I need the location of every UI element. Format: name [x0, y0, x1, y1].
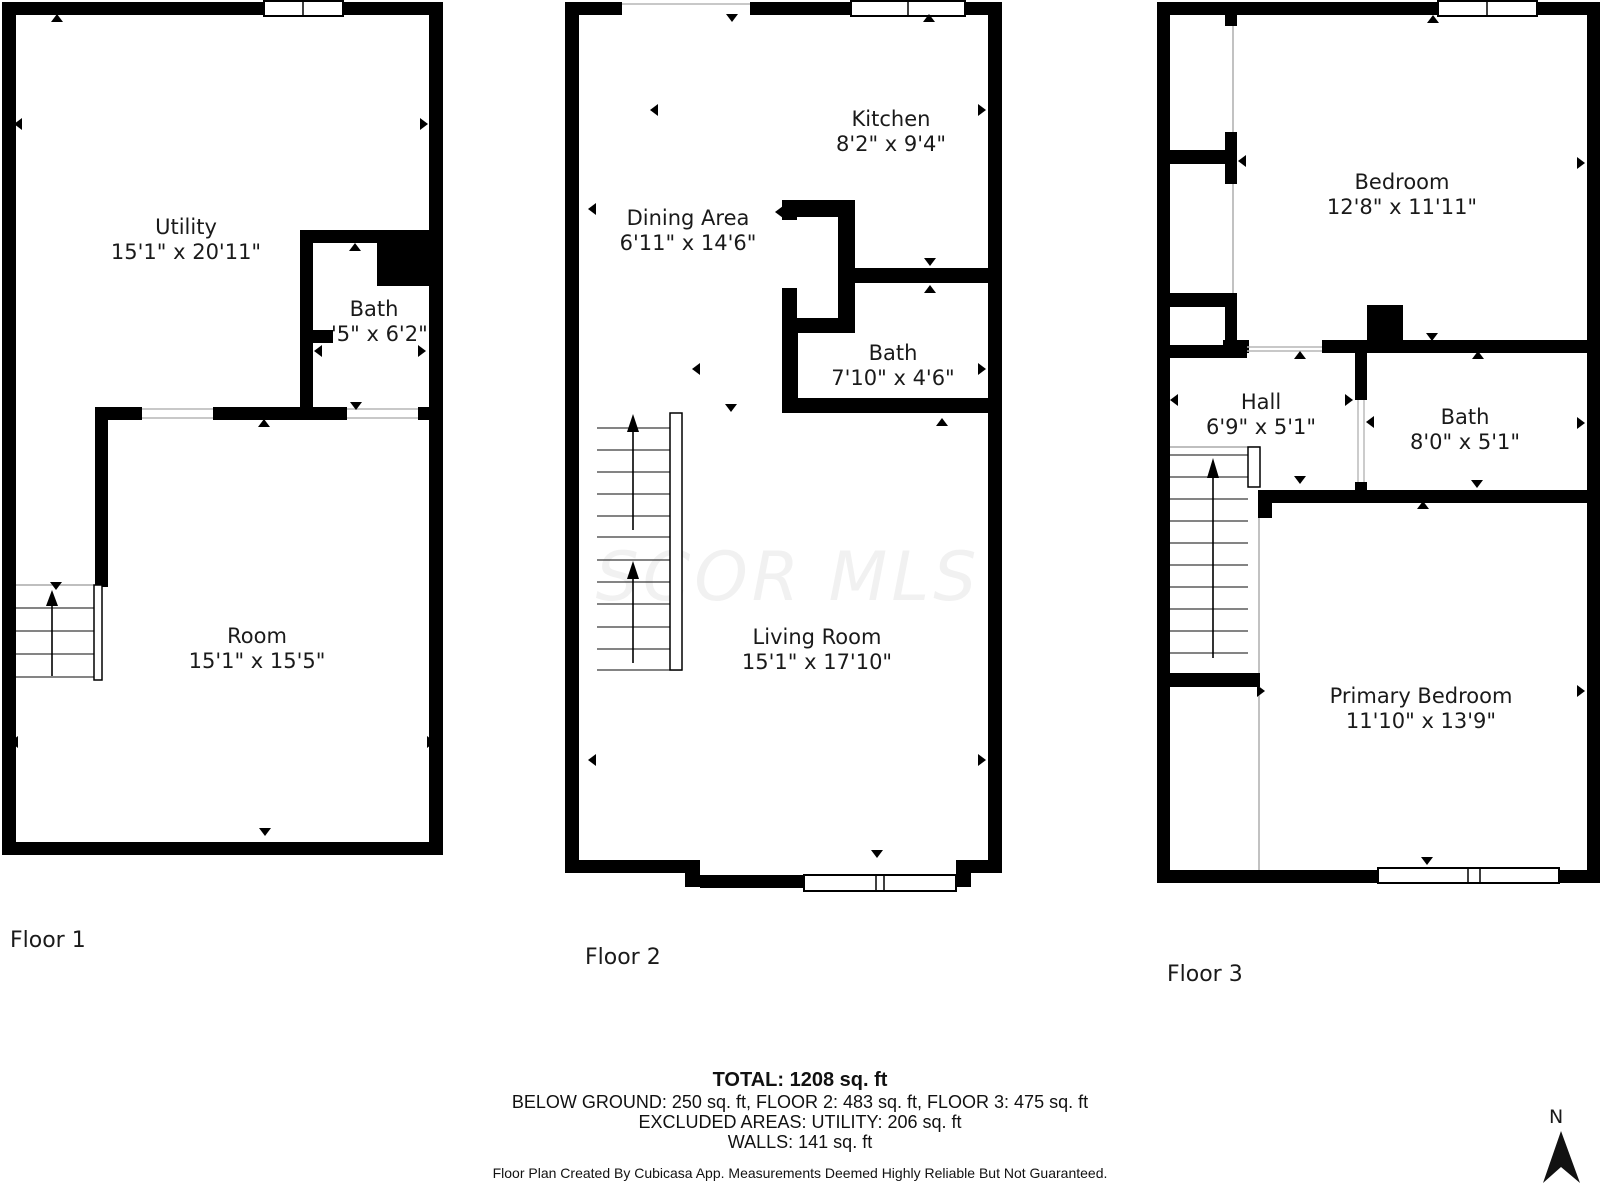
room-dims: 15'1" x 17'10" — [742, 650, 892, 675]
room-label-dining-area: Dining Area 6'11" x 14'6" — [620, 206, 757, 256]
room-name: Dining Area — [620, 206, 757, 231]
floor-breakdown-text: BELOW GROUND: 250 sq. ft, FLOOR 2: 483 s… — [0, 1092, 1600, 1112]
floor1-chimney-block — [377, 240, 429, 286]
room-label-kitchen: Kitchen 8'2" x 9'4" — [836, 107, 946, 157]
floor2-bay-window — [804, 875, 956, 891]
room-name: Bedroom — [1327, 170, 1477, 195]
room-name: Primary Bedroom — [1330, 684, 1513, 709]
room-label-primary-bedroom: Primary Bedroom 11'10" x 13'9" — [1330, 684, 1513, 734]
room-dims: 6'11" x 14'6" — [620, 231, 757, 256]
floor3-walls — [1157, 2, 1600, 883]
room-dims-bath1: '5" x 6'2" — [331, 322, 428, 347]
floor1-stairs-icon — [16, 585, 102, 680]
room-dims: 15'1" x 20'11" — [111, 240, 261, 265]
floor3-label: Floor 3 — [1167, 962, 1243, 987]
floor3-top-window — [1438, 1, 1537, 16]
room-name: Bath — [1410, 405, 1520, 430]
room-label-bath2: Bath 7'10" x 4'6" — [831, 341, 954, 391]
room-label-bath1: Bath — [350, 297, 399, 322]
excluded-areas-text: EXCLUDED AREAS: UTILITY: 206 sq. ft — [0, 1112, 1600, 1132]
room-dims: 7'10" x 4'6" — [831, 366, 954, 391]
floor2-stairs-icon — [597, 413, 682, 670]
floor1-top-window — [264, 1, 343, 16]
floor3-bottom-window — [1378, 868, 1559, 883]
floor3-stairs-icon — [1170, 447, 1260, 658]
room-label-room: Room 15'1" x 15'5" — [189, 624, 326, 674]
room-dims: 12'8" x 11'11" — [1327, 195, 1477, 220]
room-name: Room — [189, 624, 326, 649]
floorplan-page: SCOR MLS — [0, 0, 1600, 1184]
floor2-label: Floor 2 — [585, 945, 661, 970]
room-dims: 8'2" x 9'4" — [836, 132, 946, 157]
room-name: Kitchen — [836, 107, 946, 132]
room-name: Bath — [350, 297, 399, 322]
room-label-bedroom: Bedroom 12'8" x 11'11" — [1327, 170, 1477, 220]
disclaimer-text: Floor Plan Created By Cubicasa App. Meas… — [0, 1165, 1600, 1181]
room-label-hall: Hall 6'9" x 5'1" — [1206, 390, 1316, 440]
floor1-door-arrows — [10, 14, 435, 836]
floor1-bath-door-stub — [300, 330, 333, 343]
walls-area-text: WALLS: 141 sq. ft — [0, 1132, 1600, 1152]
room-dims: 11'10" x 13'9" — [1330, 709, 1513, 734]
room-dims: 6'9" x 5'1" — [1206, 415, 1316, 440]
total-area-text: TOTAL: 1208 sq. ft — [0, 1068, 1600, 1092]
room-label-utility: Utility 15'1" x 20'11" — [111, 215, 261, 265]
room-name: Bath — [831, 341, 954, 366]
room-dims: 8'0" x 5'1" — [1410, 430, 1520, 455]
area-summary: TOTAL: 1208 sq. ft BELOW GROUND: 250 sq.… — [0, 1068, 1600, 1181]
floor1-walls — [2, 2, 443, 855]
room-name: Hall — [1206, 390, 1316, 415]
room-label-bath3: Bath 8'0" x 5'1" — [1410, 405, 1520, 455]
room-name: Utility — [111, 215, 261, 240]
room-dims: 15'1" x 15'5" — [189, 649, 326, 674]
room-label-living-room: Living Room 15'1" x 17'10" — [742, 625, 892, 675]
room-name: Living Room — [742, 625, 892, 650]
floor3-chimney-block — [1367, 305, 1403, 353]
floor1-label: Floor 1 — [10, 928, 86, 953]
floor2-top-window — [851, 1, 965, 16]
